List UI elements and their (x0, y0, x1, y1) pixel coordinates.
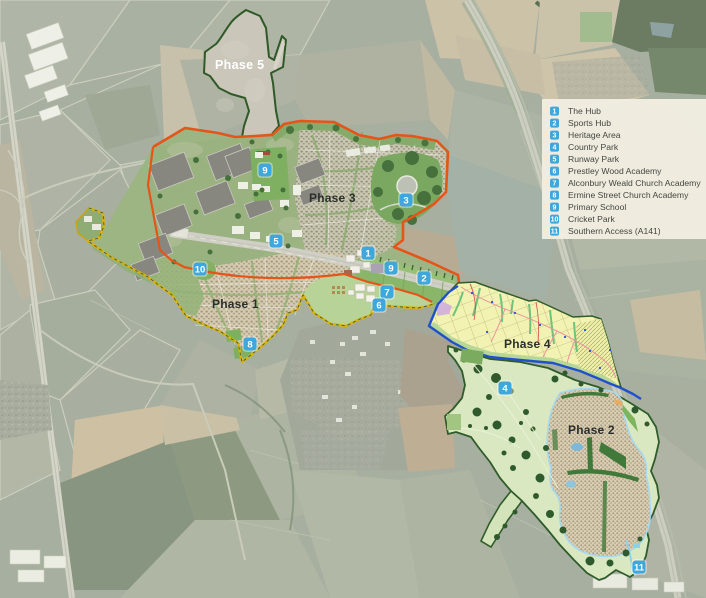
svg-text:Alconbury Weald Church Academy: Alconbury Weald Church Academy (568, 178, 701, 188)
svg-text:Phase 1: Phase 1 (212, 297, 259, 311)
svg-text:5: 5 (553, 157, 557, 164)
svg-text:Ermine Street Church Academy: Ermine Street Church Academy (568, 190, 689, 200)
svg-text:9: 9 (388, 263, 393, 274)
svg-text:8: 8 (553, 193, 557, 200)
svg-text:Runway Park: Runway Park (568, 154, 620, 164)
svg-text:Primary School: Primary School (568, 202, 626, 212)
svg-text:Heritage Area: Heritage Area (568, 130, 621, 140)
svg-text:11: 11 (551, 229, 559, 236)
svg-text:9: 9 (262, 165, 267, 176)
svg-text:Country Park: Country Park (568, 142, 619, 152)
svg-text:Phase 4: Phase 4 (504, 337, 551, 351)
svg-text:Prestley Wood Academy: Prestley Wood Academy (568, 166, 662, 176)
svg-text:The Hub: The Hub (568, 106, 601, 116)
svg-text:10: 10 (551, 217, 559, 224)
svg-text:3: 3 (553, 133, 557, 140)
svg-text:Cricket Park: Cricket Park (568, 214, 615, 224)
svg-text:Sports Hub: Sports Hub (568, 118, 611, 128)
svg-text:Phase 5: Phase 5 (215, 58, 264, 72)
svg-text:3: 3 (403, 195, 408, 206)
svg-text:7: 7 (384, 287, 389, 298)
svg-text:6: 6 (553, 169, 557, 176)
svg-text:6: 6 (376, 300, 381, 311)
svg-text:1: 1 (365, 248, 371, 259)
svg-text:4: 4 (502, 383, 508, 394)
svg-text:10: 10 (195, 264, 206, 275)
svg-text:7: 7 (553, 181, 557, 188)
svg-text:11: 11 (634, 562, 645, 573)
svg-text:5: 5 (273, 236, 279, 247)
svg-text:Phase 3: Phase 3 (309, 191, 356, 205)
svg-text:2: 2 (553, 121, 557, 128)
svg-text:2: 2 (421, 273, 426, 284)
svg-text:1: 1 (553, 109, 557, 116)
svg-text:Phase 2: Phase 2 (568, 423, 615, 437)
svg-text:4: 4 (553, 145, 557, 152)
svg-text:Southern Access (A141): Southern Access (A141) (568, 226, 661, 236)
svg-text:8: 8 (247, 339, 252, 350)
svg-text:9: 9 (553, 205, 557, 212)
